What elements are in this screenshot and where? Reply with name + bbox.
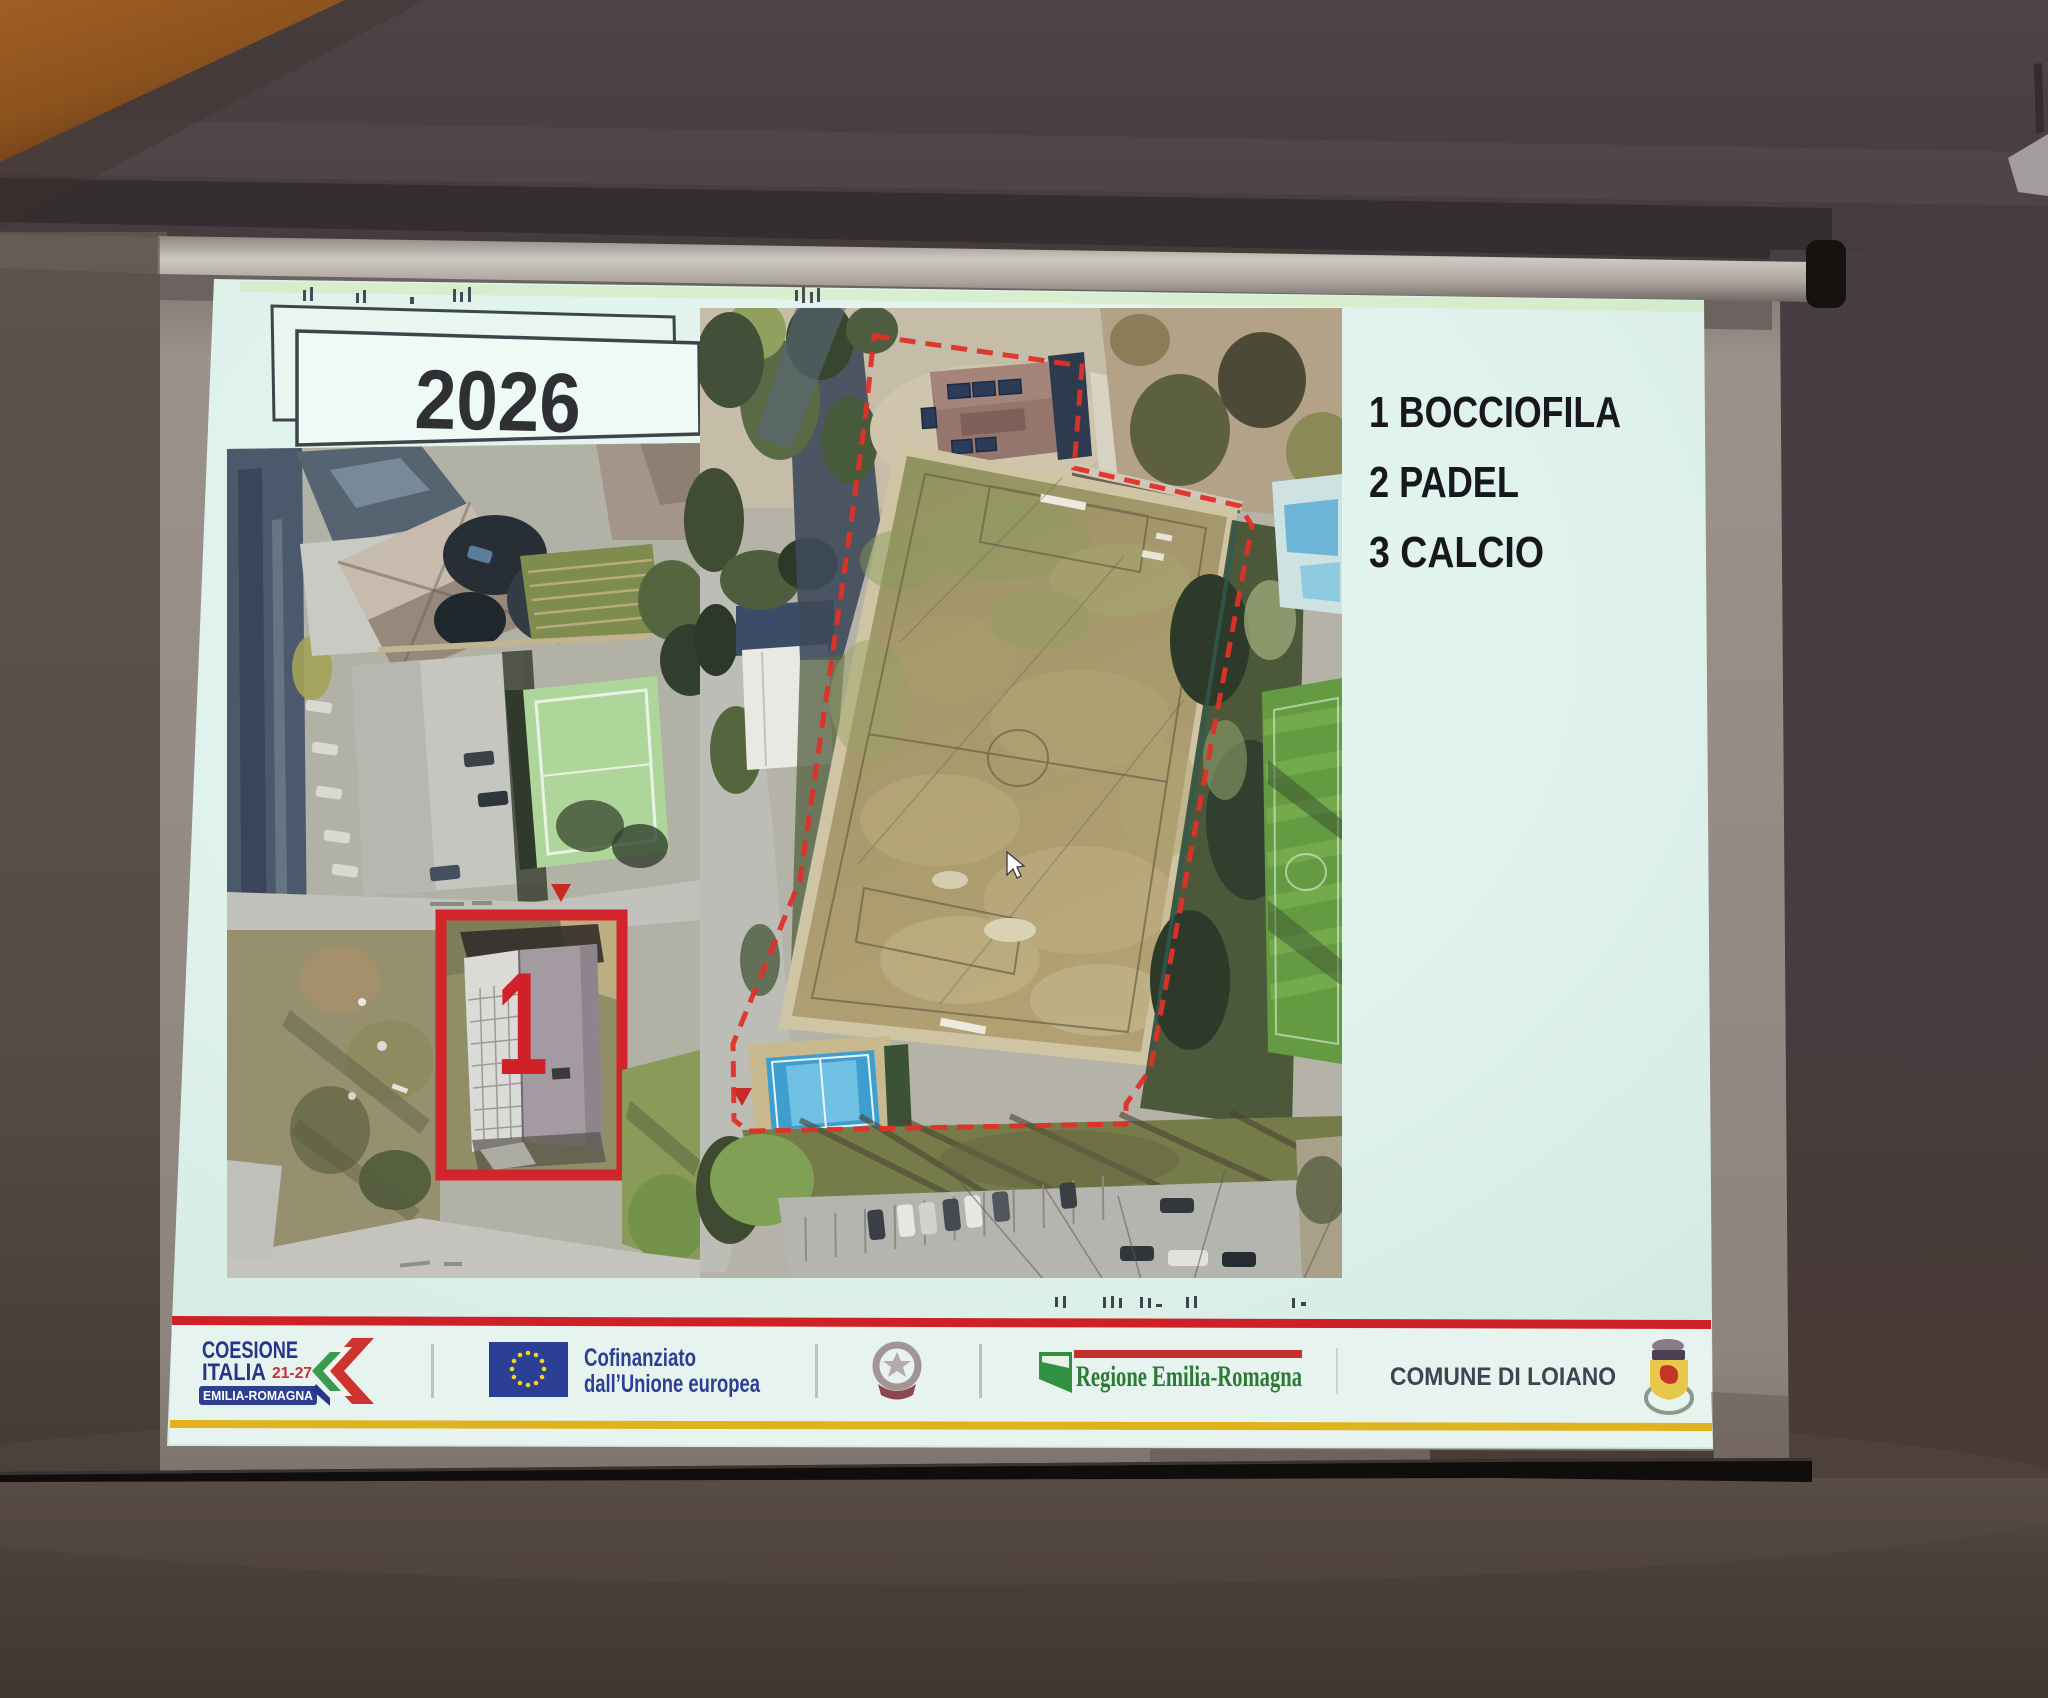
svg-text:2026: 2026	[414, 352, 582, 450]
svg-text:EMILIA-ROMAGNA: EMILIA-ROMAGNA	[203, 1388, 314, 1403]
svg-text:ITALIA: ITALIA	[202, 1359, 266, 1386]
svg-text:Regione Emilia-Romagna: Regione Emilia-Romagna	[1076, 1360, 1302, 1393]
svg-text:21-27: 21-27	[272, 1365, 312, 1382]
svg-text:2 PADEL: 2 PADEL	[1369, 458, 1519, 507]
svg-text:dall’Unione europea: dall’Unione europea	[584, 1370, 761, 1398]
svg-text:1: 1	[496, 942, 548, 1105]
svg-text:COMUNE DI LOIANO: COMUNE DI LOIANO	[1390, 1363, 1616, 1391]
svg-text:3 CALCIO: 3 CALCIO	[1369, 528, 1544, 577]
svg-text:Cofinanziato: Cofinanziato	[584, 1344, 696, 1372]
svg-text:1 BOCCIOFILA: 1 BOCCIOFILA	[1369, 388, 1621, 437]
